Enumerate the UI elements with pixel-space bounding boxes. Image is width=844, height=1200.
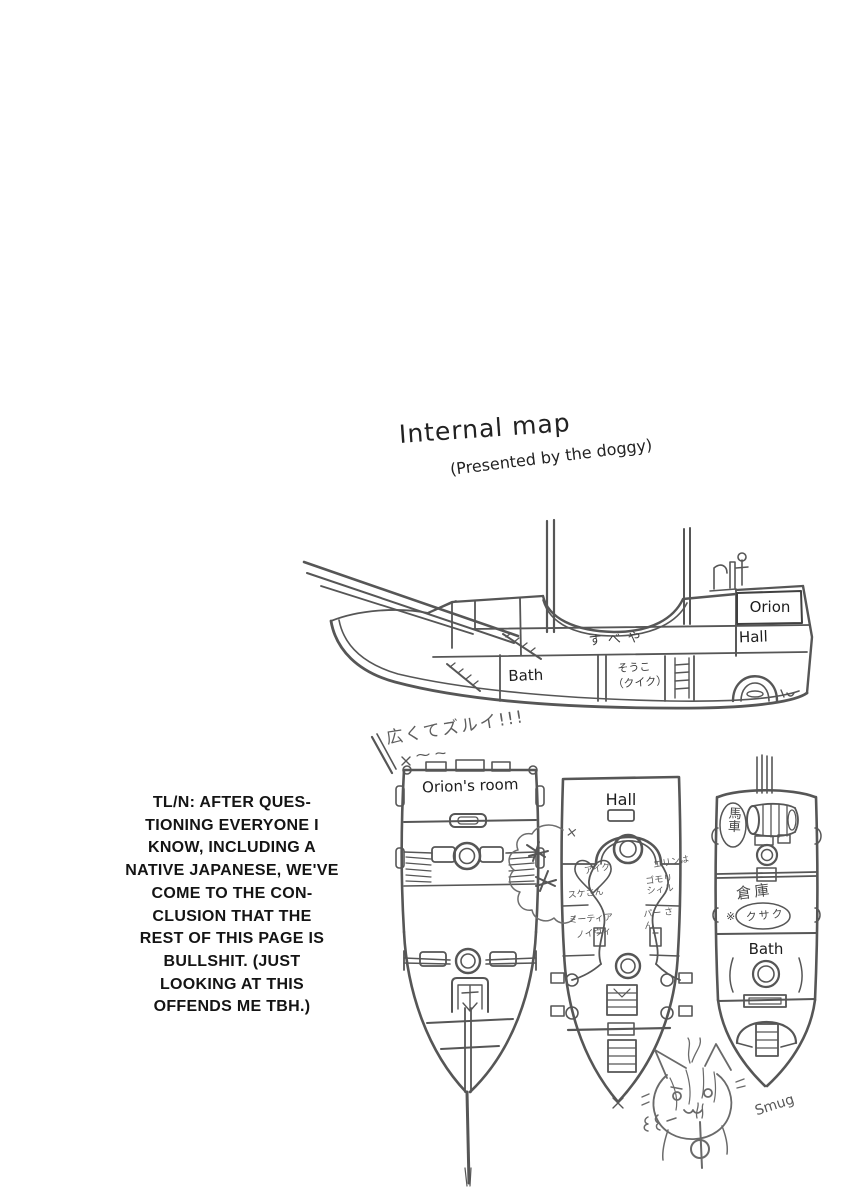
deck-plan-mid-title: Hall (590, 790, 652, 809)
sideview-label-bath: Bath (508, 666, 543, 685)
translator-note-line: COME TO THE CON- (102, 883, 362, 906)
translator-note-line: CLUSION THAT THE (102, 906, 362, 929)
translator-note-line: NATIVE JAPANESE, WE'VE (102, 860, 362, 883)
deck-plan-stern-cart-jp: 馬車 (723, 806, 743, 833)
ship-side-view-drawing (304, 520, 812, 708)
sideview-label-orion: Orion (739, 598, 801, 616)
deck-plan-stern-storage-jp: 倉庫 (735, 879, 773, 904)
deck-plan-stern-bath-label: Bath (734, 940, 798, 958)
deck-plan-bow-drawing (396, 760, 544, 1186)
translator-note-line: BULLSHIT. (JUST (102, 951, 362, 974)
deck-plan-stern-storage-ref: ※ (726, 910, 735, 923)
translator-note-line: TIONING EVERYONE I (102, 815, 362, 838)
cat-mascot-drawing (642, 1038, 745, 1168)
hall-scribble: ゴモリ シィル (645, 873, 683, 898)
sideview-label-hall: Hall (722, 627, 785, 647)
page-sketch (0, 0, 844, 1200)
translator-note-line: OFFENDS ME TBH.) (102, 996, 362, 1019)
translator-note-line: REST OF THIS PAGE IS (102, 928, 362, 951)
translator-note-line: LOOKING AT THIS (102, 974, 362, 997)
translator-note-line: KNOW, INCLUDING A (102, 837, 362, 860)
hall-scribble: パー さん (643, 907, 675, 933)
crossout-mark: × (565, 824, 579, 841)
translator-note-line: TL/N: AFTER QUES- (102, 792, 362, 815)
manga-page: Internal map (Presented by the doggy) Or… (0, 0, 844, 1200)
translator-note: TL/N: AFTER QUES- TIONING EVERYONE I KNO… (102, 792, 362, 1019)
